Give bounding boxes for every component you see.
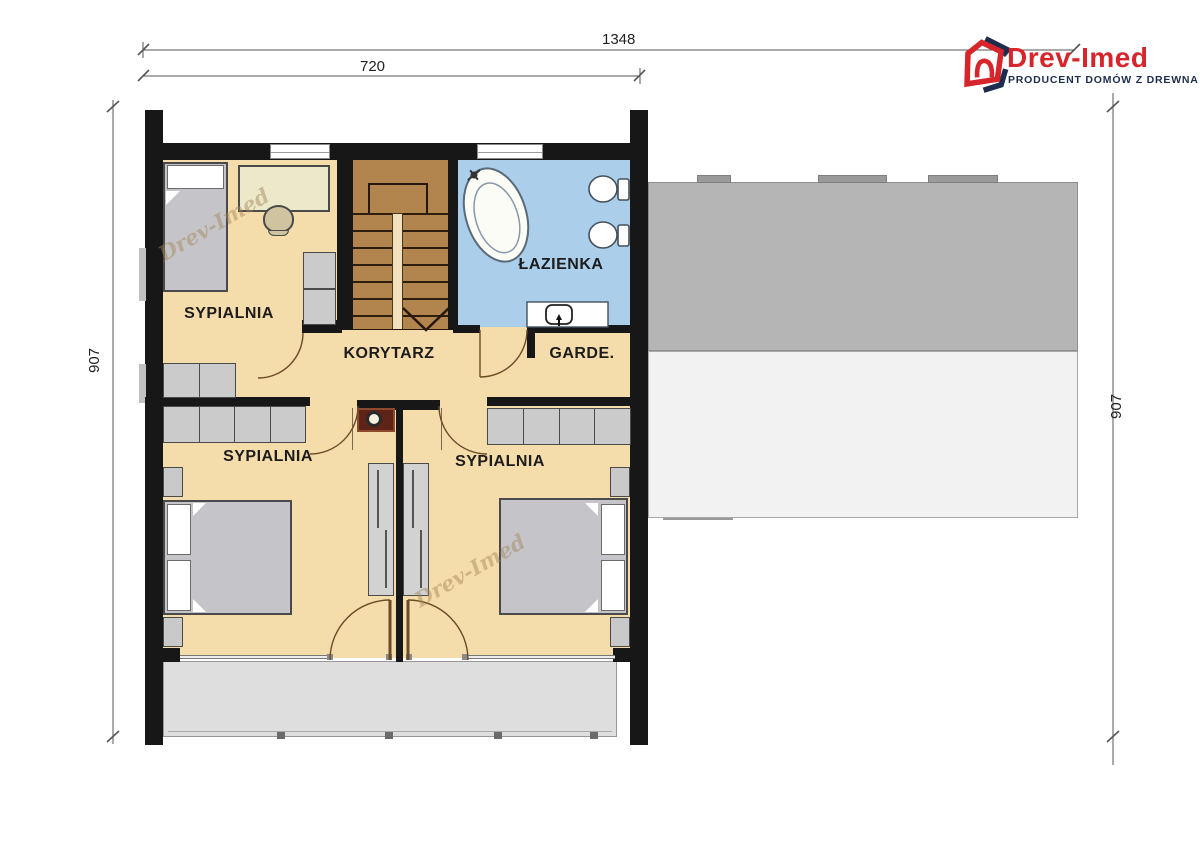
- room-label-bathroom: ŁAZIENKA: [510, 256, 612, 274]
- bed-double-right-pillow-1: [601, 504, 625, 555]
- chimney-flue: [366, 411, 382, 427]
- wall-corridor-right: [487, 397, 648, 406]
- stairs-bottom-line: [353, 329, 448, 330]
- balcony-post-1: [277, 732, 285, 739]
- wall-stairs-right: [448, 143, 458, 330]
- bed-double-left-fold-1: [193, 503, 206, 516]
- bed-single-pillow: [167, 165, 224, 189]
- wall-bedrooms-divider: [396, 408, 403, 662]
- dimension-right-height: 907: [1108, 394, 1125, 419]
- stairs-steps-left: [353, 213, 392, 330]
- roof-tab-2: [818, 175, 887, 183]
- stairs-stringer: [392, 213, 403, 330]
- floor-bathroom: [458, 160, 630, 327]
- sliding-wardrobe-left-handle-1: [377, 470, 379, 528]
- room-label-bedroom-bottom-right: SYPIALNIA: [441, 453, 559, 471]
- room-label-bedroom-top-left: SYPIALNIA: [170, 305, 288, 323]
- nightstand-right-1: [610, 467, 630, 497]
- wall-bathroom-bottom: [527, 325, 648, 333]
- bed-double-right-pillow-2: [601, 560, 625, 611]
- bed-double-right-fold-1: [585, 503, 598, 516]
- wall-bathroom-bottom-left: [453, 325, 480, 333]
- wall-stairs-left: [337, 148, 353, 330]
- stairs-steps-right: [403, 213, 448, 330]
- balcony-door-jamb-4: [462, 654, 468, 660]
- bed-single-fold: [166, 191, 180, 205]
- balcony-door-jamb-3: [406, 654, 412, 660]
- bed-double-left-pillow-2: [167, 560, 191, 611]
- balcony-post-2: [385, 732, 393, 739]
- sliding-wardrobe-left: [368, 463, 394, 596]
- bed-double-left-fold-2: [193, 599, 206, 612]
- wardrobe-bedroom-left: [163, 406, 305, 443]
- wall-balcony-stub-left: [145, 648, 180, 662]
- roof-area-dark: [648, 182, 1078, 351]
- sliding-wardrobe-right: [403, 463, 429, 596]
- sliding-wardrobe-right-handle-1: [412, 470, 414, 528]
- balcony-door-jamb-2: [386, 654, 392, 660]
- wardrobe-corridor: [163, 363, 235, 398]
- balcony-floor: [163, 661, 617, 737]
- wardrobe-bedroom-right: [487, 408, 630, 445]
- cabinet-top-bedroom: [303, 252, 335, 325]
- balcony-post-3: [494, 732, 502, 739]
- wall-corridor-left: [145, 397, 310, 406]
- dimension-left-height: 907: [86, 348, 103, 373]
- nightstand-left-1: [163, 467, 183, 497]
- nightstand-left-2: [163, 617, 183, 647]
- nightstand-right-2: [610, 617, 630, 647]
- wall-top: [163, 143, 630, 160]
- balcony-post-4: [590, 732, 598, 739]
- stairwell-opening: [368, 183, 428, 213]
- sliding-wardrobe-left-handle-2: [385, 530, 387, 588]
- balcony-door-jamb-1: [327, 654, 333, 660]
- roof-tab-1: [697, 175, 731, 183]
- sliding-wardrobe-right-handle-2: [420, 530, 422, 588]
- wall-garde-stub: [527, 325, 535, 358]
- corridor-door-jamb-right: [441, 408, 442, 450]
- corridor-door-jamb-left: [352, 408, 353, 450]
- room-label-corridor: KORYTARZ: [338, 345, 440, 363]
- logo-tagline-text: PRODUCENT DOMÓW Z DREWNA: [1008, 74, 1199, 86]
- logo-house-icon: [967, 39, 1007, 91]
- room-label-bedroom-bottom-left: SYPIALNIA: [209, 448, 327, 466]
- bed-double-right-fold-2: [585, 599, 598, 612]
- balcony-glass-wall-1: [180, 655, 330, 659]
- window-top-bedroom: [270, 144, 330, 159]
- desk-chair: [263, 205, 294, 233]
- roof-step-line: [663, 518, 733, 520]
- dimension-top-total: 1348: [602, 31, 635, 48]
- window-left-sill-1: [139, 248, 146, 301]
- logo-brand-text: Drev-Imed: [1007, 42, 1148, 74]
- floor-plan-canvas: SYPIALNIA ŁAZIENKA KORYTARZ GARDE. SYPIA…: [0, 0, 1200, 848]
- bed-double-left-pillow-1: [167, 504, 191, 555]
- balcony-glass-wall-2: [465, 655, 615, 659]
- roof-area-light: [648, 351, 1078, 518]
- dimension-top-inner: 720: [360, 58, 385, 75]
- room-label-wardrobe: GARDE.: [540, 345, 624, 363]
- wall-balcony-stub-right: [613, 648, 648, 662]
- desk-chair-base: [268, 230, 289, 236]
- window-top-bathroom: [477, 144, 543, 159]
- roof-tab-3: [928, 175, 998, 183]
